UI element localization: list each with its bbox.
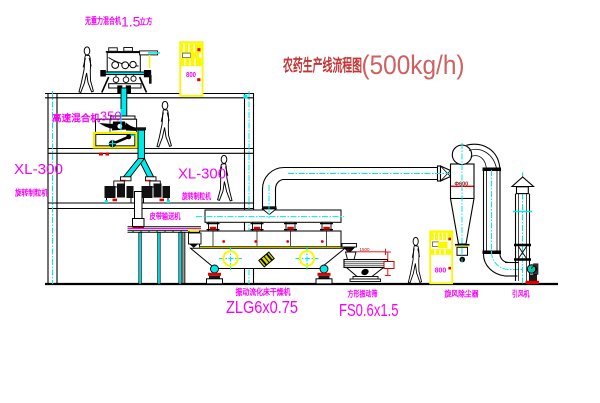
svg-text:方形振动筛: 方形振动筛 [348, 289, 378, 299]
svg-text:无重力混合机: 无重力混合机 [84, 15, 121, 26]
svg-text:立方: 立方 [140, 17, 153, 27]
svg-text:振动流化床干燥机: 振动流化床干燥机 [236, 287, 291, 297]
svg-text:FS0.6x1.5: FS0.6x1.5 [339, 300, 399, 320]
svg-text:旋转制粒机: 旋转制粒机 [14, 188, 48, 198]
svg-text:350: 350 [100, 110, 122, 124]
svg-text:农药生产线流程图: 农药生产线流程图 [282, 55, 362, 75]
svg-text:1.5: 1.5 [121, 14, 141, 30]
svg-text:ZLG6x0.75: ZLG6x0.75 [226, 297, 298, 317]
svg-text:皮带输送机: 皮带输送机 [149, 211, 181, 221]
svg-text:XL-300: XL-300 [178, 167, 226, 183]
svg-text:800: 800 [435, 267, 447, 274]
svg-text:Φ600: Φ600 [455, 181, 469, 187]
svg-text:(500kg/h): (500kg/h) [362, 50, 465, 80]
svg-text:XL-300: XL-300 [14, 162, 63, 178]
svg-text:旋风除尘器: 旋风除尘器 [444, 289, 480, 299]
svg-text:旋转制粒机: 旋转制粒机 [181, 191, 211, 201]
svg-text:引风机: 引风机 [512, 289, 530, 299]
svg-text:800: 800 [186, 72, 196, 79]
svg-text:高速混合机: 高速混合机 [52, 113, 100, 125]
svg-text:1500: 1500 [360, 247, 371, 252]
